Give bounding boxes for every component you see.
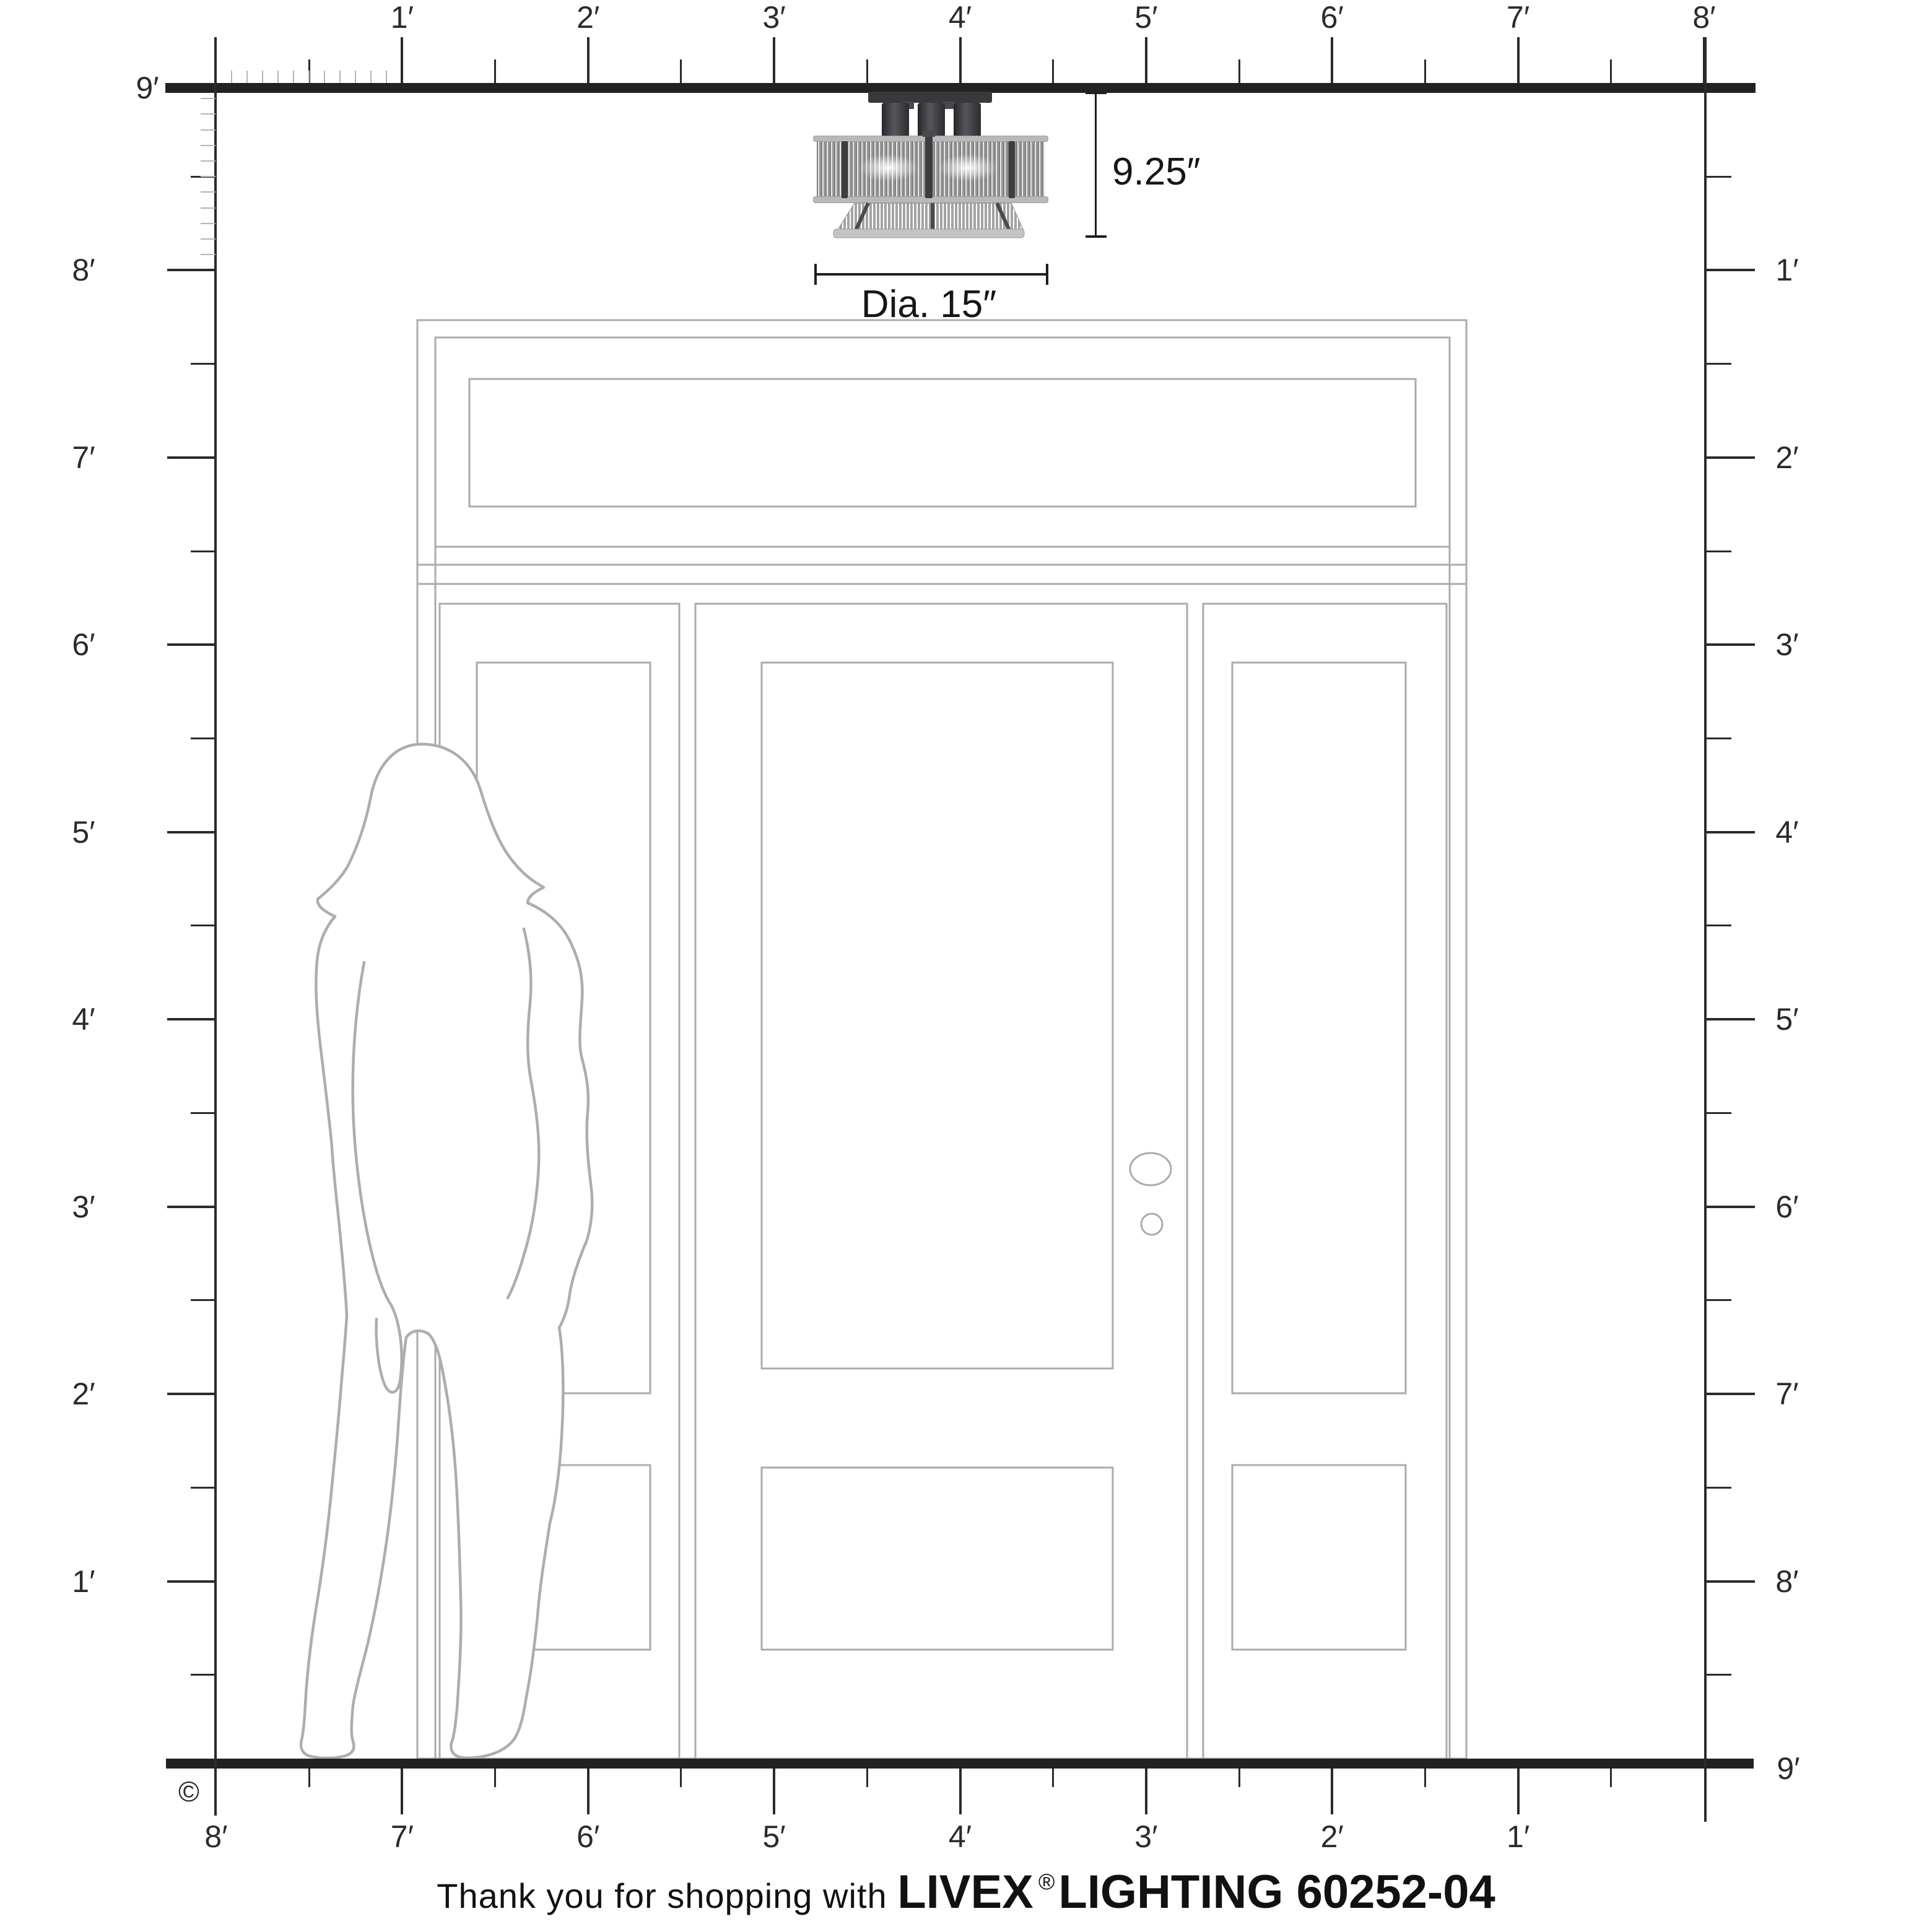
product-dimension-diagram: 1′2′3′4′5′6′7′8′8′7′6′5′4′3′2′1′9′8′7′6′… <box>0 0 1932 1932</box>
bottom-ruler-half-tick <box>680 1769 682 1787</box>
left-ruler-label: 3′ <box>46 1190 121 1224</box>
left-ruler-half-tick <box>191 363 215 365</box>
left-ruler-inch-tick <box>201 145 215 146</box>
top-ruler-foot-tick <box>1145 37 1147 83</box>
bottom-ruler-foot-tick <box>1517 1769 1520 1814</box>
diameter-dim-cap-right <box>1046 264 1048 285</box>
right-ruler-half-tick <box>1707 176 1731 178</box>
bottom-ruler-half-tick <box>866 1769 868 1787</box>
top-ruler-label: 2′ <box>551 0 625 35</box>
top-ruler-half-tick <box>866 59 868 83</box>
left-ruler-half-tick <box>191 1674 215 1676</box>
right-ruler-label: 5′ <box>1750 1002 1824 1037</box>
right-ruler-label: 3′ <box>1750 627 1824 662</box>
right-ruler-half-tick <box>1707 738 1731 739</box>
right-ruler-label: 8′ <box>1750 1564 1824 1599</box>
left-ruler-label: 8′ <box>46 253 121 287</box>
left-ruler-label: 6′ <box>46 627 121 662</box>
left-ruler-foot-tick <box>167 1206 215 1208</box>
left-ruler-foot-tick <box>167 269 215 271</box>
bottom-ruler-label: 6′ <box>551 1819 625 1854</box>
top-ruler-half-tick <box>1610 59 1612 83</box>
top-ruler-foot-tick <box>587 37 590 83</box>
footer-text: Thank you for shopping with LIVEX ® LIGH… <box>0 1865 1932 1927</box>
height-dim-cap-bottom <box>1086 235 1107 238</box>
right-ruler-label: 2′ <box>1750 440 1824 475</box>
right-ruler-label: 6′ <box>1750 1190 1824 1224</box>
top-ruler-inch-tick <box>324 71 325 83</box>
right-ruler-foot-tick <box>1707 456 1755 459</box>
top-ruler-label: 1′ <box>365 0 439 35</box>
left-ruler-foot-tick <box>167 831 215 833</box>
bottom-ruler-label: 8′ <box>179 1819 253 1854</box>
top-ruler-inch-tick <box>277 71 279 83</box>
top-ruler-foot-tick <box>773 37 775 83</box>
right-ruler-foot-tick <box>1707 831 1755 833</box>
left-ruler-foot-tick <box>167 643 215 646</box>
top-ruler-half-tick <box>1052 59 1054 83</box>
left-ruler-label: 4′ <box>46 1002 121 1037</box>
bottom-ruler-label: 7′ <box>365 1819 439 1854</box>
top-ruler-inch-tick <box>355 71 356 83</box>
right-ruler-label: 7′ <box>1750 1377 1824 1411</box>
bottom-ruler-label: 5′ <box>737 1819 811 1854</box>
top-ruler-foot-tick <box>1331 37 1333 83</box>
left-ruler-foot-tick <box>167 1018 215 1020</box>
right-ruler-half-tick <box>1707 1299 1731 1301</box>
right-ruler-foot-tick <box>1707 643 1755 646</box>
top-ruler-foot-tick <box>959 37 962 83</box>
registered-trademark-icon: ® <box>1038 1869 1055 1895</box>
right-ruler-half-tick <box>1707 550 1731 552</box>
top-ruler-inch-tick <box>246 71 248 83</box>
top-ruler-foot-tick <box>1703 37 1705 83</box>
left-ruler-half-tick <box>191 1112 215 1114</box>
fixture-stem <box>954 103 981 137</box>
right-ruler-label: 1′ <box>1750 253 1824 287</box>
top-ruler-inch-tick <box>262 71 263 83</box>
bottom-ruler-half-tick <box>1610 1769 1612 1787</box>
fixture-diffuser <box>830 202 1028 240</box>
bottom-ruler-label: 2′ <box>1295 1819 1369 1854</box>
right-ruler-foot-tick <box>1707 1018 1755 1020</box>
top-ruler-foot-tick <box>401 37 403 83</box>
left-ruler-half-tick <box>191 738 215 739</box>
top-ruler-label: 7′ <box>1481 0 1556 35</box>
left-ruler-inch-tick <box>201 113 215 115</box>
left-ruler-label: 7′ <box>46 440 121 475</box>
height-dim-label: 9.25″ <box>1112 150 1201 194</box>
copyright-symbol: © <box>178 1775 199 1808</box>
top-ruler-inch-tick <box>386 71 387 83</box>
left-ruler-label: 5′ <box>46 815 121 850</box>
left-ruler-label: 2′ <box>46 1377 121 1411</box>
bottom-ruler-foot-tick <box>1145 1769 1147 1814</box>
shade-mullion-center <box>925 136 933 198</box>
left-ruler-half-tick <box>191 1299 215 1301</box>
top-ruler-inch-tick <box>339 71 341 83</box>
right-ruler-bottom-label: 9′ <box>1751 1751 1825 1786</box>
bottom-ruler-foot-tick <box>587 1769 590 1814</box>
shade-highlight <box>859 154 918 181</box>
shade-mullion <box>1009 141 1015 198</box>
right-ruler-foot-tick <box>1707 1393 1755 1395</box>
top-ruler-inch-tick <box>370 71 372 83</box>
fixture-drum-shade <box>813 136 1048 203</box>
bottom-ruler-foot-tick <box>959 1769 962 1814</box>
right-ruler-half-tick <box>1707 1112 1731 1114</box>
diffuser-rim <box>833 229 1024 238</box>
footer-brand: LIVEX <box>897 1865 1033 1919</box>
left-ruler-foot-tick <box>167 456 215 459</box>
top-ruler-foot-tick <box>1517 37 1520 83</box>
bottom-ruler-half-tick <box>1238 1769 1240 1787</box>
diameter-dim-label: Dia. 15″ <box>817 282 1040 326</box>
height-dim-line <box>1095 93 1097 237</box>
top-ruler-label: 4′ <box>923 0 998 35</box>
diameter-dim-cap-left <box>814 264 817 285</box>
bottom-ruler-half-tick <box>308 1769 310 1787</box>
top-ruler-label: 8′ <box>1667 0 1741 35</box>
left-ruler-inch-tick <box>201 160 215 162</box>
top-ruler-half-tick <box>1238 59 1240 83</box>
right-ruler-foot-tick <box>1707 269 1755 271</box>
bottom-ruler-half-tick <box>494 1769 496 1787</box>
top-ruler-half-tick <box>1424 59 1426 83</box>
bottom-ruler-foot-tick <box>773 1769 775 1814</box>
left-ruler-foot-tick <box>167 1393 215 1395</box>
right-ruler-foot-tick <box>1707 1580 1755 1583</box>
top-ruler-label: 5′ <box>1109 0 1183 35</box>
shade-center-finial <box>923 131 935 137</box>
left-ruler-half-tick <box>191 550 215 552</box>
footer-product-number: LIGHTING 60252-04 <box>1058 1865 1495 1919</box>
bottom-ruler-label: 4′ <box>923 1819 998 1854</box>
shade-highlight <box>938 154 998 181</box>
right-ruler-label: 4′ <box>1750 815 1824 850</box>
top-ruler-label: 6′ <box>1295 0 1369 35</box>
left-ruler-inch-tick <box>201 129 215 131</box>
right-ruler-half-tick <box>1707 363 1731 365</box>
right-ruler-foot-tick <box>1707 1206 1755 1208</box>
floor-line <box>166 1759 1754 1769</box>
top-ruler-half-tick <box>680 59 682 83</box>
bottom-ruler-foot-tick <box>401 1769 403 1814</box>
left-ruler-half-tick <box>191 925 215 926</box>
top-ruler-inch-tick <box>231 71 232 83</box>
footer-thanks: Thank you for shopping with <box>437 1876 887 1916</box>
top-ruler-inch-tick <box>293 71 294 83</box>
shade-mullion <box>842 141 848 198</box>
right-ruler-half-tick <box>1707 1487 1731 1489</box>
left-ruler-inch-tick <box>201 207 215 209</box>
diameter-dim-line <box>814 273 1048 276</box>
right-ruler-half-tick <box>1707 1674 1731 1676</box>
left-ruler-inch-tick <box>201 98 215 99</box>
left-ruler-inch-tick <box>201 191 215 193</box>
top-ruler-inch-tick <box>308 71 310 83</box>
bottom-ruler-half-tick <box>1052 1769 1054 1787</box>
bottom-ruler-label: 1′ <box>1481 1819 1556 1854</box>
fixture-stem <box>882 103 909 137</box>
bottom-ruler-foot-tick <box>1331 1769 1333 1814</box>
person-outline <box>301 744 592 1758</box>
top-ruler-half-tick <box>494 59 496 83</box>
left-ruler-inch-tick <box>201 254 215 255</box>
bottom-ruler-label: 3′ <box>1109 1819 1183 1854</box>
footer-space <box>887 1876 898 1916</box>
left-ruler-top-label: 9′ <box>110 71 185 105</box>
left-ruler-inch-tick <box>201 176 215 177</box>
top-ruler-label: 3′ <box>737 0 811 35</box>
right-ruler-line <box>1704 37 1707 1822</box>
left-ruler-inch-tick <box>201 238 215 240</box>
right-ruler-half-tick <box>1707 925 1731 926</box>
left-ruler-label: 1′ <box>46 1564 121 1599</box>
height-dim-cap-top <box>1086 92 1107 94</box>
bottom-ruler-half-tick <box>1424 1769 1426 1787</box>
left-ruler-half-tick <box>191 1487 215 1489</box>
left-ruler-inch-tick <box>201 223 215 224</box>
left-ruler-foot-tick <box>167 1580 215 1583</box>
fixture-canopy <box>868 92 992 103</box>
